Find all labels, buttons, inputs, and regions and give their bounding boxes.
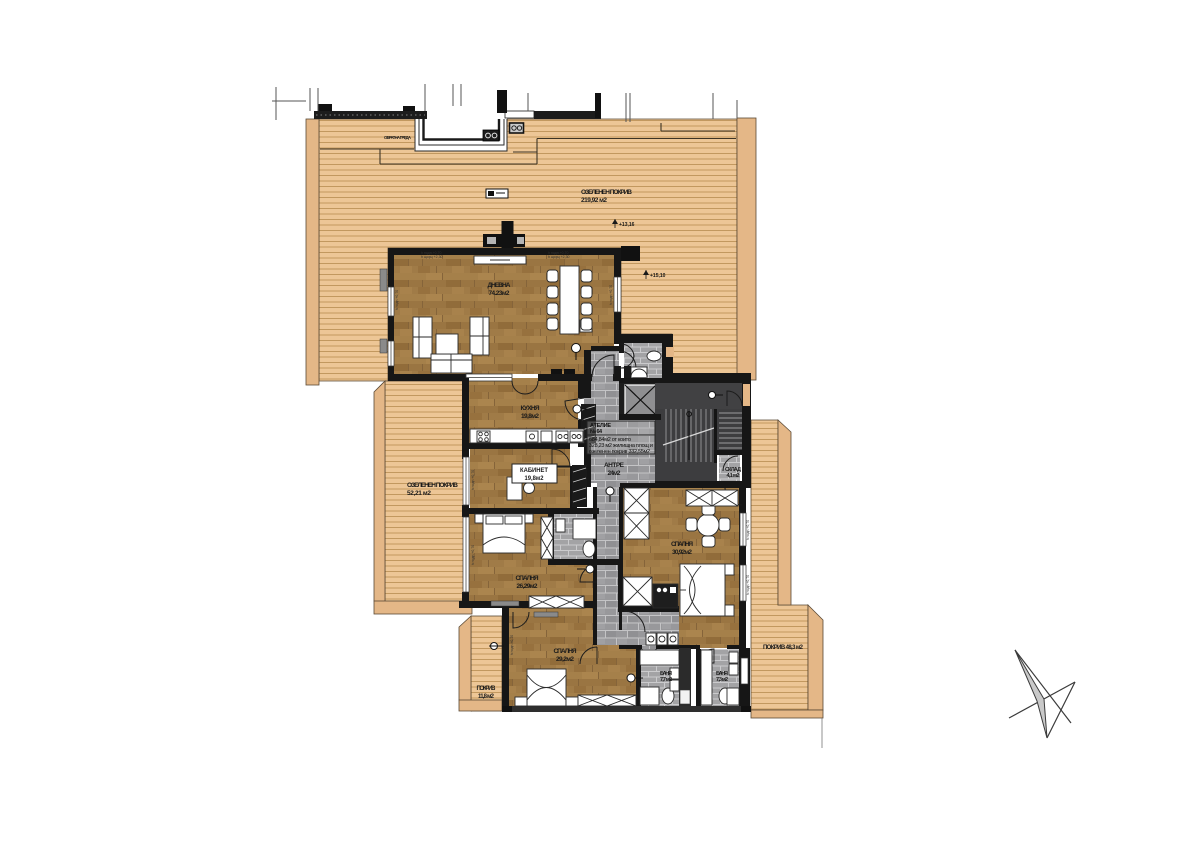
svg-text:ПОКРИВ 48,3 м2: ПОКРИВ 48,3 м2: [763, 645, 804, 651]
svg-text:7,7 м2: 7,7 м2: [660, 677, 672, 683]
svg-text:ОЗЕЛЕНЕН ПОКРИВ: ОЗЕЛЕНЕН ПОКРИВ: [407, 482, 458, 489]
svg-text:КУХНЯ: КУХНЯ: [521, 405, 540, 412]
svg-text:ДНЕВНА: ДНЕВНА: [488, 282, 511, 289]
svg-text:h подп.+0,70: h подп.+0,70: [395, 290, 399, 311]
svg-text:№ 64: № 64: [590, 429, 603, 435]
svg-text:ОБРАТНА ГРЕДА: ОБРАТНА ГРЕДА: [384, 135, 411, 140]
svg-text:h щорц +2,30: h щорц +2,30: [421, 255, 443, 259]
svg-text:h подп.+0,70: h подп.+0,70: [746, 520, 750, 541]
svg-text:СПАЛНЯ: СПАЛНЯ: [554, 648, 577, 655]
svg-text:h подп.+0,70: h подп.+0,70: [471, 545, 475, 566]
svg-text:4,1 м2: 4,1 м2: [727, 473, 740, 479]
svg-text:ПОКРИВ: ПОКРИВ: [477, 686, 497, 692]
svg-text:h подп.+0,70: h подп.+0,70: [510, 635, 514, 656]
svg-text:h подп.+0,70: h подп.+0,70: [609, 285, 613, 306]
svg-text:КАБИНЕТ: КАБИНЕТ: [520, 467, 548, 474]
svg-text:h подп.+0,70: h подп.+0,70: [471, 470, 475, 491]
svg-text:219,92 м2: 219,92 м2: [581, 197, 607, 204]
svg-text:26,29м2: 26,29м2: [517, 583, 538, 590]
svg-text:24м2: 24м2: [608, 470, 621, 477]
svg-text:СПАЛНЯ: СПАЛНЯ: [516, 575, 539, 582]
svg-text:СПАЛНЯ: СПАЛНЯ: [671, 541, 693, 548]
svg-text:озеленен покрив 332,55м2: озеленен покрив 332,55м2: [589, 449, 650, 455]
svg-text:30,92м2: 30,92м2: [672, 549, 692, 556]
svg-text:52,21 м2: 52,21 м2: [407, 490, 431, 497]
svg-text:ОЗЕЛЕНЕН ПОКРИВ: ОЗЕЛЕНЕН ПОКРИВ: [581, 189, 632, 196]
svg-text:29,2м2: 29,2м2: [556, 656, 574, 663]
svg-text:+13,16: +13,16: [619, 222, 635, 228]
svg-text:11,8 м2: 11,8 м2: [478, 694, 495, 700]
svg-text:19,8м2: 19,8м2: [521, 413, 539, 420]
svg-text:АНТРЕ: АНТРЕ: [604, 462, 625, 469]
svg-text:74.23м2: 74.23м2: [489, 290, 510, 297]
svg-text:+15,10: +15,10: [650, 273, 666, 279]
svg-text:h подп.+0,70: h подп.+0,70: [746, 575, 750, 596]
svg-text:19,8м2: 19,8м2: [525, 475, 544, 482]
svg-text:7,3 м2: 7,3 м2: [716, 677, 728, 683]
svg-text:h щорц +2,30: h щорц +2,30: [548, 255, 570, 259]
